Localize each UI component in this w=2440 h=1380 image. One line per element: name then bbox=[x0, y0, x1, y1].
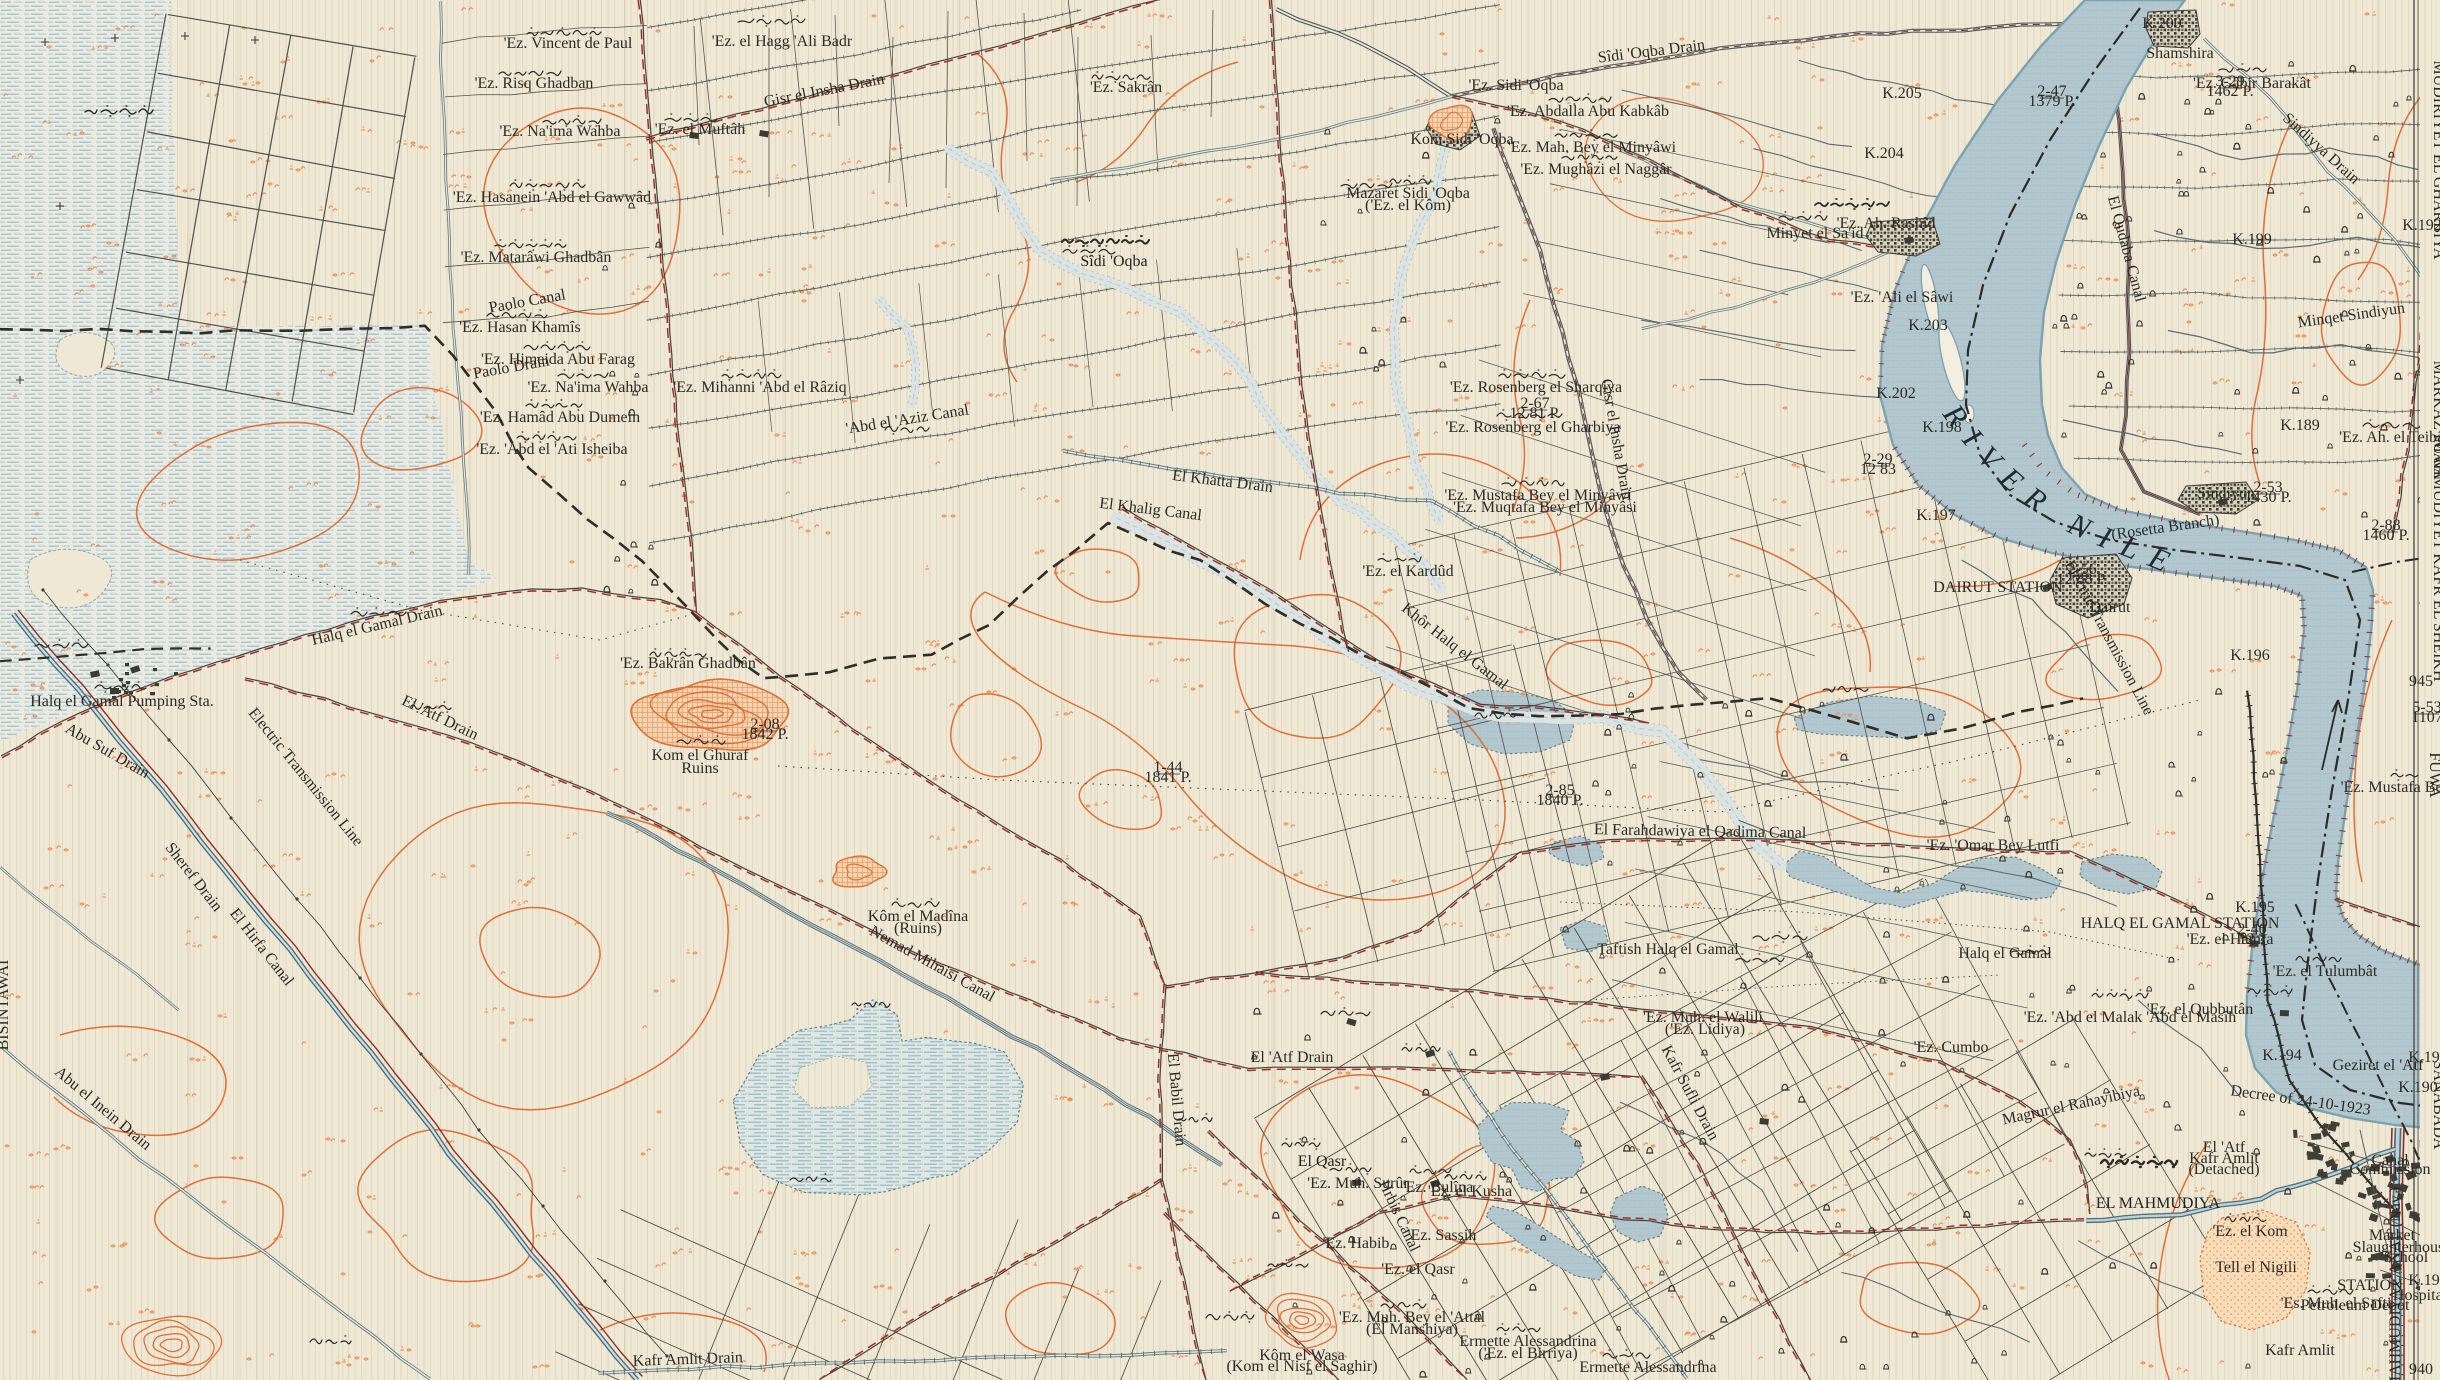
svg-text:(El Manshiya): (El Manshiya) bbox=[1366, 1321, 1458, 1338]
svg-text:945: 945 bbox=[2409, 673, 2433, 690]
svg-text:1841 P.: 1841 P. bbox=[1144, 769, 1191, 786]
svg-text:SANABADA: SANABADA bbox=[2430, 1061, 2440, 1150]
svg-text:12 81 P.: 12 81 P. bbox=[1509, 405, 1560, 422]
svg-text:'Ez. el Kardûd: 'Ez. el Kardûd bbox=[1362, 563, 1453, 580]
svg-text:'Ez. Himeida Abu Farag: 'Ez. Himeida Abu Farag bbox=[481, 351, 635, 368]
svg-text:12 88 P.: 12 88 P. bbox=[2056, 571, 2107, 588]
svg-text:EL MAHMUDIYA: EL MAHMUDIYA bbox=[2096, 1195, 2221, 1212]
svg-text:'Ez. Hasanein 'Abd el Gawwâd: 'Ez. Hasanein 'Abd el Gawwâd bbox=[453, 189, 651, 206]
svg-text:K.200: K.200 bbox=[2142, 15, 2182, 32]
svg-text:K.196: K.196 bbox=[2230, 647, 2270, 664]
svg-text:'Ez. Cumbo: 'Ez. Cumbo bbox=[1914, 1039, 1989, 1056]
svg-text:'Ez. Sassih: 'Ez. Sassih bbox=[1408, 1227, 1477, 1244]
svg-text:Sîdi 'Oqba: Sîdi 'Oqba bbox=[1080, 253, 1147, 270]
svg-text:'Ez. el Kusha: 'Ez. el Kusha bbox=[1428, 1183, 1512, 1200]
svg-text:1840 P.: 1840 P. bbox=[1536, 792, 1583, 809]
svg-text:'Ez. Vincent de Paul: 'Ez. Vincent de Paul bbox=[504, 35, 633, 52]
svg-text:'Ez. Mah. Bey el Minyâwi: 'Ez. Mah. Bey el Minyâwi bbox=[1508, 139, 1677, 156]
svg-text:Taftish Halq el Gamal: Taftish Halq el Gamal bbox=[1597, 941, 1739, 958]
svg-text:EL MAHMUDIYA CANAL (Nav.): EL MAHMUDIYA CANAL (Nav.) bbox=[2387, 1187, 2404, 1380]
svg-text:12 83: 12 83 bbox=[1860, 461, 1896, 478]
svg-text:'Ez. el Muftâh: 'Ez. el Muftâh bbox=[655, 121, 745, 138]
svg-text:'Ez. Na'ima Wahba: 'Ez. Na'ima Wahba bbox=[499, 123, 620, 140]
svg-text:Halq el Gamal: Halq el Gamal bbox=[1958, 945, 2052, 962]
svg-text:'Ez. Mihanni 'Abd el Râziq: 'Ez. Mihanni 'Abd el Râziq bbox=[673, 379, 846, 396]
svg-text:Ruins: Ruins bbox=[681, 760, 718, 777]
svg-text:MUDIRIYET EL GHARBIYA: MUDIRIYET EL GHARBIYA bbox=[2430, 60, 2440, 260]
svg-text:K.194: K.194 bbox=[2262, 1047, 2302, 1064]
svg-text:'Ez. Hasan Khamîs: 'Ez. Hasan Khamîs bbox=[459, 319, 581, 336]
svg-text:El Qasr: El Qasr bbox=[1298, 1153, 1347, 1170]
svg-text:'Ez. el Qasr: 'Ez. el Qasr bbox=[1381, 1261, 1455, 1278]
svg-text:1460 P.: 1460 P. bbox=[2362, 527, 2409, 544]
svg-text:'Ez. Matarâwi Ghadbân: 'Ez. Matarâwi Ghadbân bbox=[461, 249, 612, 266]
svg-text:940: 940 bbox=[2409, 1361, 2433, 1378]
svg-text:'Es. Muh. el Safti: 'Es. Muh. el Safti bbox=[2281, 1295, 2392, 1312]
svg-text:K.198: K.198 bbox=[1922, 419, 1962, 436]
svg-text:'Ez. Mughâzi el Naggâr: 'Ez. Mughâzi el Naggâr bbox=[1520, 161, 1672, 178]
svg-text:FUWA: FUWA bbox=[2426, 752, 2440, 798]
svg-text:'Ez. 'Omar Bey Lutfi: 'Ez. 'Omar Bey Lutfi bbox=[1927, 837, 2060, 854]
svg-text:MAHMUDIYET KAFR EL SHEIKH: MAHMUDIYET KAFR EL SHEIKH bbox=[2430, 438, 2440, 682]
svg-text:K.189: K.189 bbox=[2280, 417, 2320, 434]
svg-text:'Ez. el Hagg 'Ali Badr: 'Ez. el Hagg 'Ali Badr bbox=[712, 33, 853, 50]
svg-text:'Ez. Muqtafa Bey el Minyâsi: 'Ez. Muqtafa Bey el Minyâsi bbox=[1453, 499, 1637, 516]
svg-text:K.195: K.195 bbox=[2235, 899, 2275, 916]
svg-text:Kafr Amlit: Kafr Amlit bbox=[2265, 1342, 2335, 1359]
svg-text:K.202: K.202 bbox=[1876, 385, 1916, 402]
svg-text:1107: 1107 bbox=[2411, 709, 2440, 726]
svg-text:Tell el Nigili: Tell el Nigili bbox=[2215, 1259, 2297, 1276]
svg-text:Ermette Alessandrina: Ermette Alessandrina bbox=[1579, 1359, 1716, 1376]
svg-text:'Ez. Ah. el Teibâni: 'Ez. Ah. el Teibâni bbox=[2339, 429, 2440, 446]
svg-text:BISINTAWAI: BISINTAWAI bbox=[0, 960, 12, 1051]
svg-text:'Ez. Bakrân Ghadbân: 'Ez. Bakrân Ghadbân bbox=[620, 655, 756, 672]
svg-text:'Ez. Hamâd Abu Dumein: 'Ez. Hamâd Abu Dumein bbox=[480, 409, 640, 426]
svg-text:'Ez. Sidi 'Oqba: 'Ez. Sidi 'Oqba bbox=[1468, 77, 1563, 94]
svg-text:('Ez. el Kôm): ('Ez. el Kôm) bbox=[1365, 197, 1451, 214]
svg-text:(Detached): (Detached) bbox=[2188, 1161, 2259, 1178]
svg-text:1430 P.: 1430 P. bbox=[2244, 489, 2291, 506]
svg-text:K.197: K.197 bbox=[1916, 507, 1956, 524]
svg-text:'Ez. Rosenberg el Sharqiya: 'Ez. Rosenberg el Sharqiya bbox=[1450, 379, 1622, 396]
svg-text:(Kom el Nisf el Saghir): (Kom el Nisf el Saghir) bbox=[1226, 1358, 1377, 1375]
svg-text:'Ez. Risq Ghadban: 'Ez. Risq Ghadban bbox=[475, 75, 594, 92]
svg-text:'Ez. 'Abd el 'Ati Isheiba: 'Ez. 'Abd el 'Ati Isheiba bbox=[476, 441, 627, 458]
svg-text:12 ?: 12 ? bbox=[2238, 931, 2265, 948]
svg-text:'Ez. Mustafa Bey Ragab: 'Ez. Mustafa Bey Ragab bbox=[2341, 779, 2440, 796]
svg-text:('Ez. el Birriya): ('Ez. el Birriya) bbox=[1478, 1345, 1577, 1362]
svg-text:'Ez. el Kom: 'Ez. el Kom bbox=[2212, 1223, 2288, 1240]
svg-text:('Ez. Lidiya): ('Ez. Lidiya) bbox=[1665, 1021, 1745, 1038]
svg-text:Kom Sidi 'Oqba: Kom Sidi 'Oqba bbox=[1410, 131, 1513, 148]
svg-text:K.204: K.204 bbox=[1864, 145, 1904, 162]
svg-text:K.199: K.199 bbox=[2232, 231, 2272, 248]
svg-text:'Ez. Muh. Surûr: 'Ez. Muh. Surûr bbox=[1307, 1175, 1409, 1192]
svg-text:El 'Atf Drain: El 'Atf Drain bbox=[1251, 1049, 1334, 1066]
svg-text:1462 P.: 1462 P. bbox=[2206, 83, 2253, 100]
svg-text:'Ez. Ah. Rashîd: 'Ez. Ah. Rashîd bbox=[1837, 215, 1936, 232]
svg-text:1379 P.: 1379 P. bbox=[2028, 93, 2075, 110]
svg-text:Shamshira: Shamshira bbox=[2146, 45, 2214, 62]
svg-text:'Ez. 'Ali el Sâwi: 'Ez. 'Ali el Sâwi bbox=[1851, 289, 1954, 306]
svg-text:'Ez. Sakrân: 'Ez. Sakrân bbox=[1090, 79, 1162, 96]
svg-text:'Ez. el Qubbutân: 'Ez. el Qubbutân bbox=[2147, 1001, 2253, 1018]
svg-text:(Ruins): (Ruins) bbox=[894, 920, 942, 937]
svg-text:K.203: K.203 bbox=[1908, 317, 1948, 334]
svg-text:Halq el Gamal Pumping Sta.: Halq el Gamal Pumping Sta. bbox=[30, 693, 214, 710]
svg-text:1842 P.: 1842 P. bbox=[741, 726, 788, 743]
svg-text:K.205: K.205 bbox=[1882, 85, 1922, 102]
svg-text:'Ez. el Tulumbât: 'Ez. el Tulumbât bbox=[2273, 963, 2378, 980]
svg-text:'Ez. Na'ima Wahba: 'Ez. Na'ima Wahba bbox=[527, 379, 648, 396]
svg-text:K.193: K.193 bbox=[2408, 1272, 2440, 1289]
svg-text:'Ez. Habib: 'Ez. Habib bbox=[1323, 1235, 1390, 1252]
svg-text:DAIRUT STATION: DAIRUT STATION bbox=[1933, 579, 2063, 596]
svg-text:'Ez. Abdalla Abu Kabkâb: 'Ez. Abdalla Abu Kabkâb bbox=[1507, 103, 1669, 120]
